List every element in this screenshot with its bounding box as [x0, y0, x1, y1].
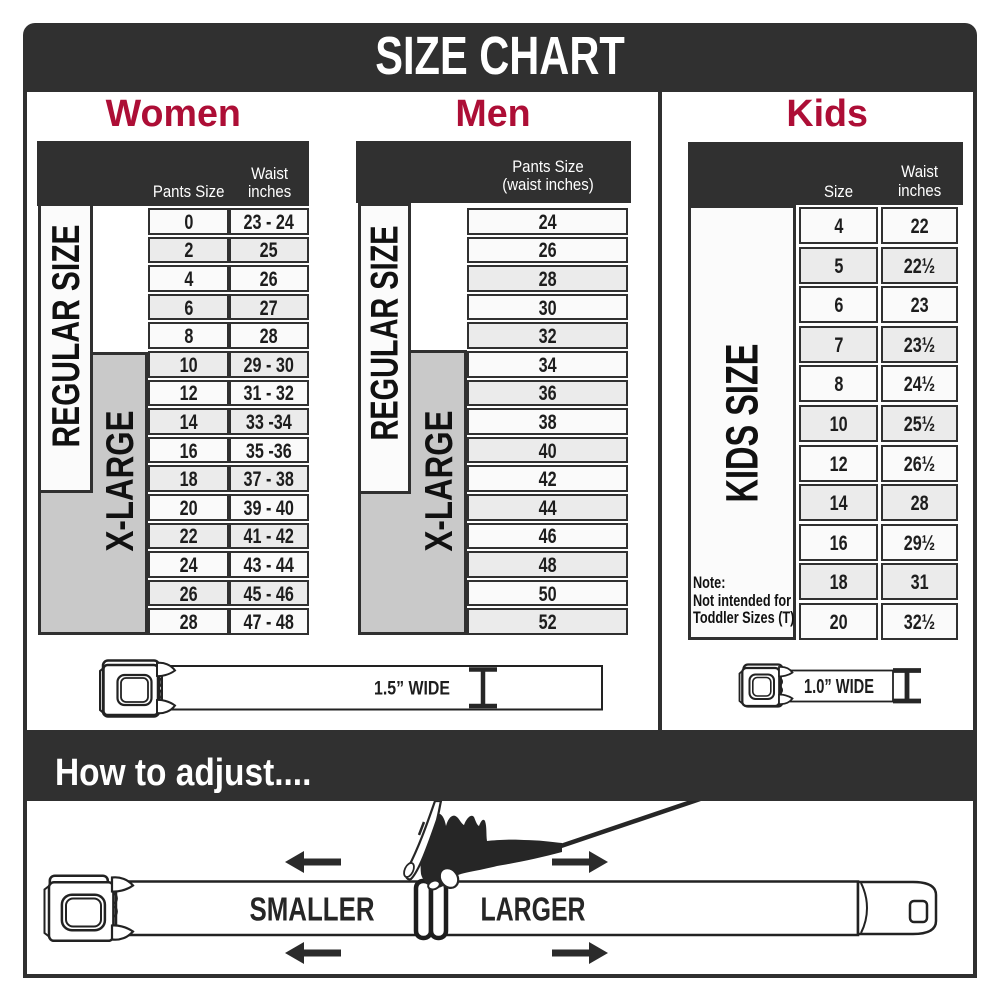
svg-text:1.0” WIDE: 1.0” WIDE — [804, 676, 874, 698]
svg-text:1.5” WIDE: 1.5” WIDE — [374, 678, 450, 700]
svg-text:SMALLER: SMALLER — [250, 891, 375, 928]
svg-text:LARGER: LARGER — [481, 891, 586, 928]
